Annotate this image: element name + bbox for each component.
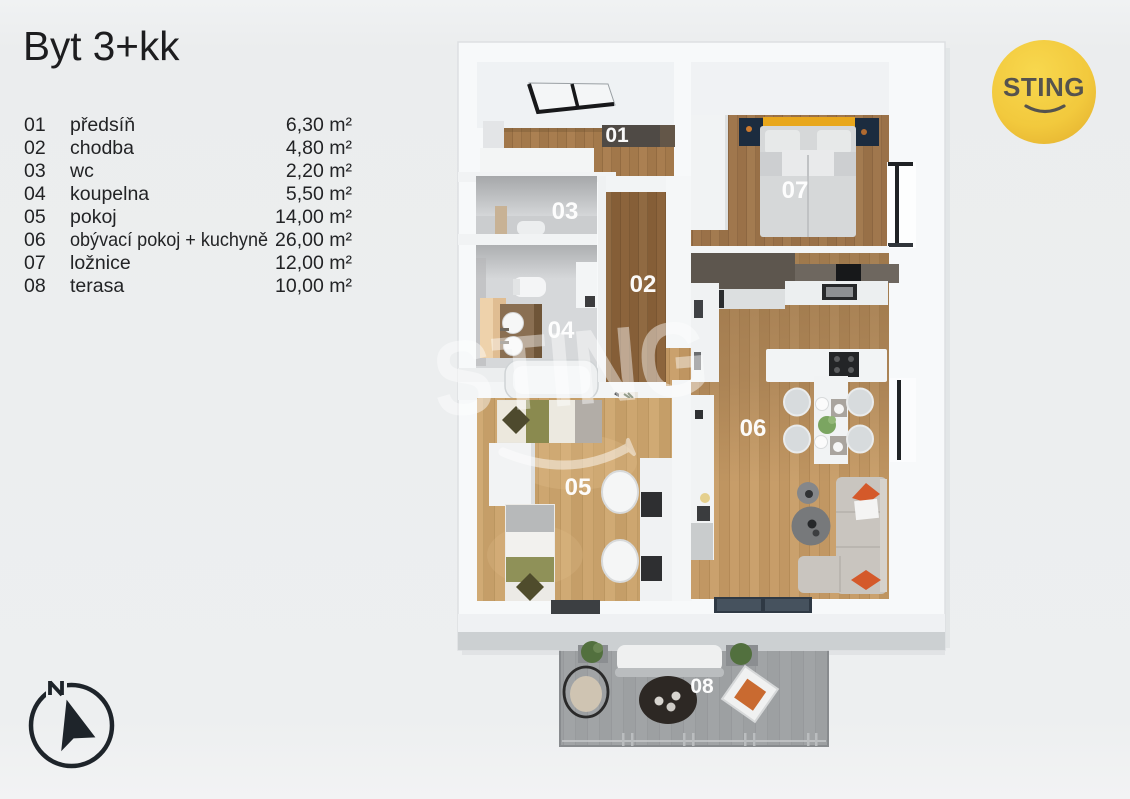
svg-text:14,00 m²: 14,00 m² — [275, 206, 352, 228]
svg-text:4,80 m²: 4,80 m² — [286, 137, 353, 159]
svg-text:STING: STING — [1003, 72, 1085, 102]
svg-text:ložnice: ložnice — [70, 252, 131, 274]
svg-text:01: 01 — [605, 124, 629, 147]
svg-text:pokoj: pokoj — [70, 206, 117, 228]
svg-text:10,00 m²: 10,00 m² — [275, 275, 352, 297]
svg-text:08: 08 — [24, 275, 46, 297]
svg-text:obývací pokoj + kuchyně: obývací pokoj + kuchyně — [70, 229, 268, 251]
svg-text:02: 02 — [630, 271, 657, 298]
svg-text:chodba: chodba — [70, 137, 134, 159]
svg-text:koupelna: koupelna — [70, 183, 149, 205]
svg-text:terasa: terasa — [70, 275, 124, 297]
svg-text:2,20 m²: 2,20 m² — [286, 160, 353, 182]
svg-text:26,00 m²: 26,00 m² — [275, 229, 352, 251]
svg-text:08: 08 — [690, 675, 714, 698]
svg-text:wc: wc — [69, 160, 94, 182]
svg-text:04: 04 — [24, 183, 46, 205]
svg-text:5,50 m²: 5,50 m² — [286, 183, 353, 205]
svg-text:03: 03 — [24, 160, 46, 182]
svg-text:6,30 m²: 6,30 m² — [286, 114, 353, 136]
svg-text:předsíň: předsíň — [70, 114, 135, 136]
svg-text:07: 07 — [782, 177, 809, 204]
svg-text:12,00 m²: 12,00 m² — [275, 252, 352, 274]
svg-text:06: 06 — [740, 415, 767, 442]
svg-text:06: 06 — [24, 229, 46, 251]
svg-text:05: 05 — [565, 474, 592, 501]
svg-text:05: 05 — [24, 206, 46, 228]
svg-text:07: 07 — [24, 252, 46, 274]
svg-text:04: 04 — [548, 317, 575, 344]
svg-text:Byt 3+kk: Byt 3+kk — [23, 23, 180, 69]
svg-text:03: 03 — [552, 198, 579, 225]
svg-text:02: 02 — [24, 137, 46, 159]
svg-text:01: 01 — [24, 114, 46, 136]
